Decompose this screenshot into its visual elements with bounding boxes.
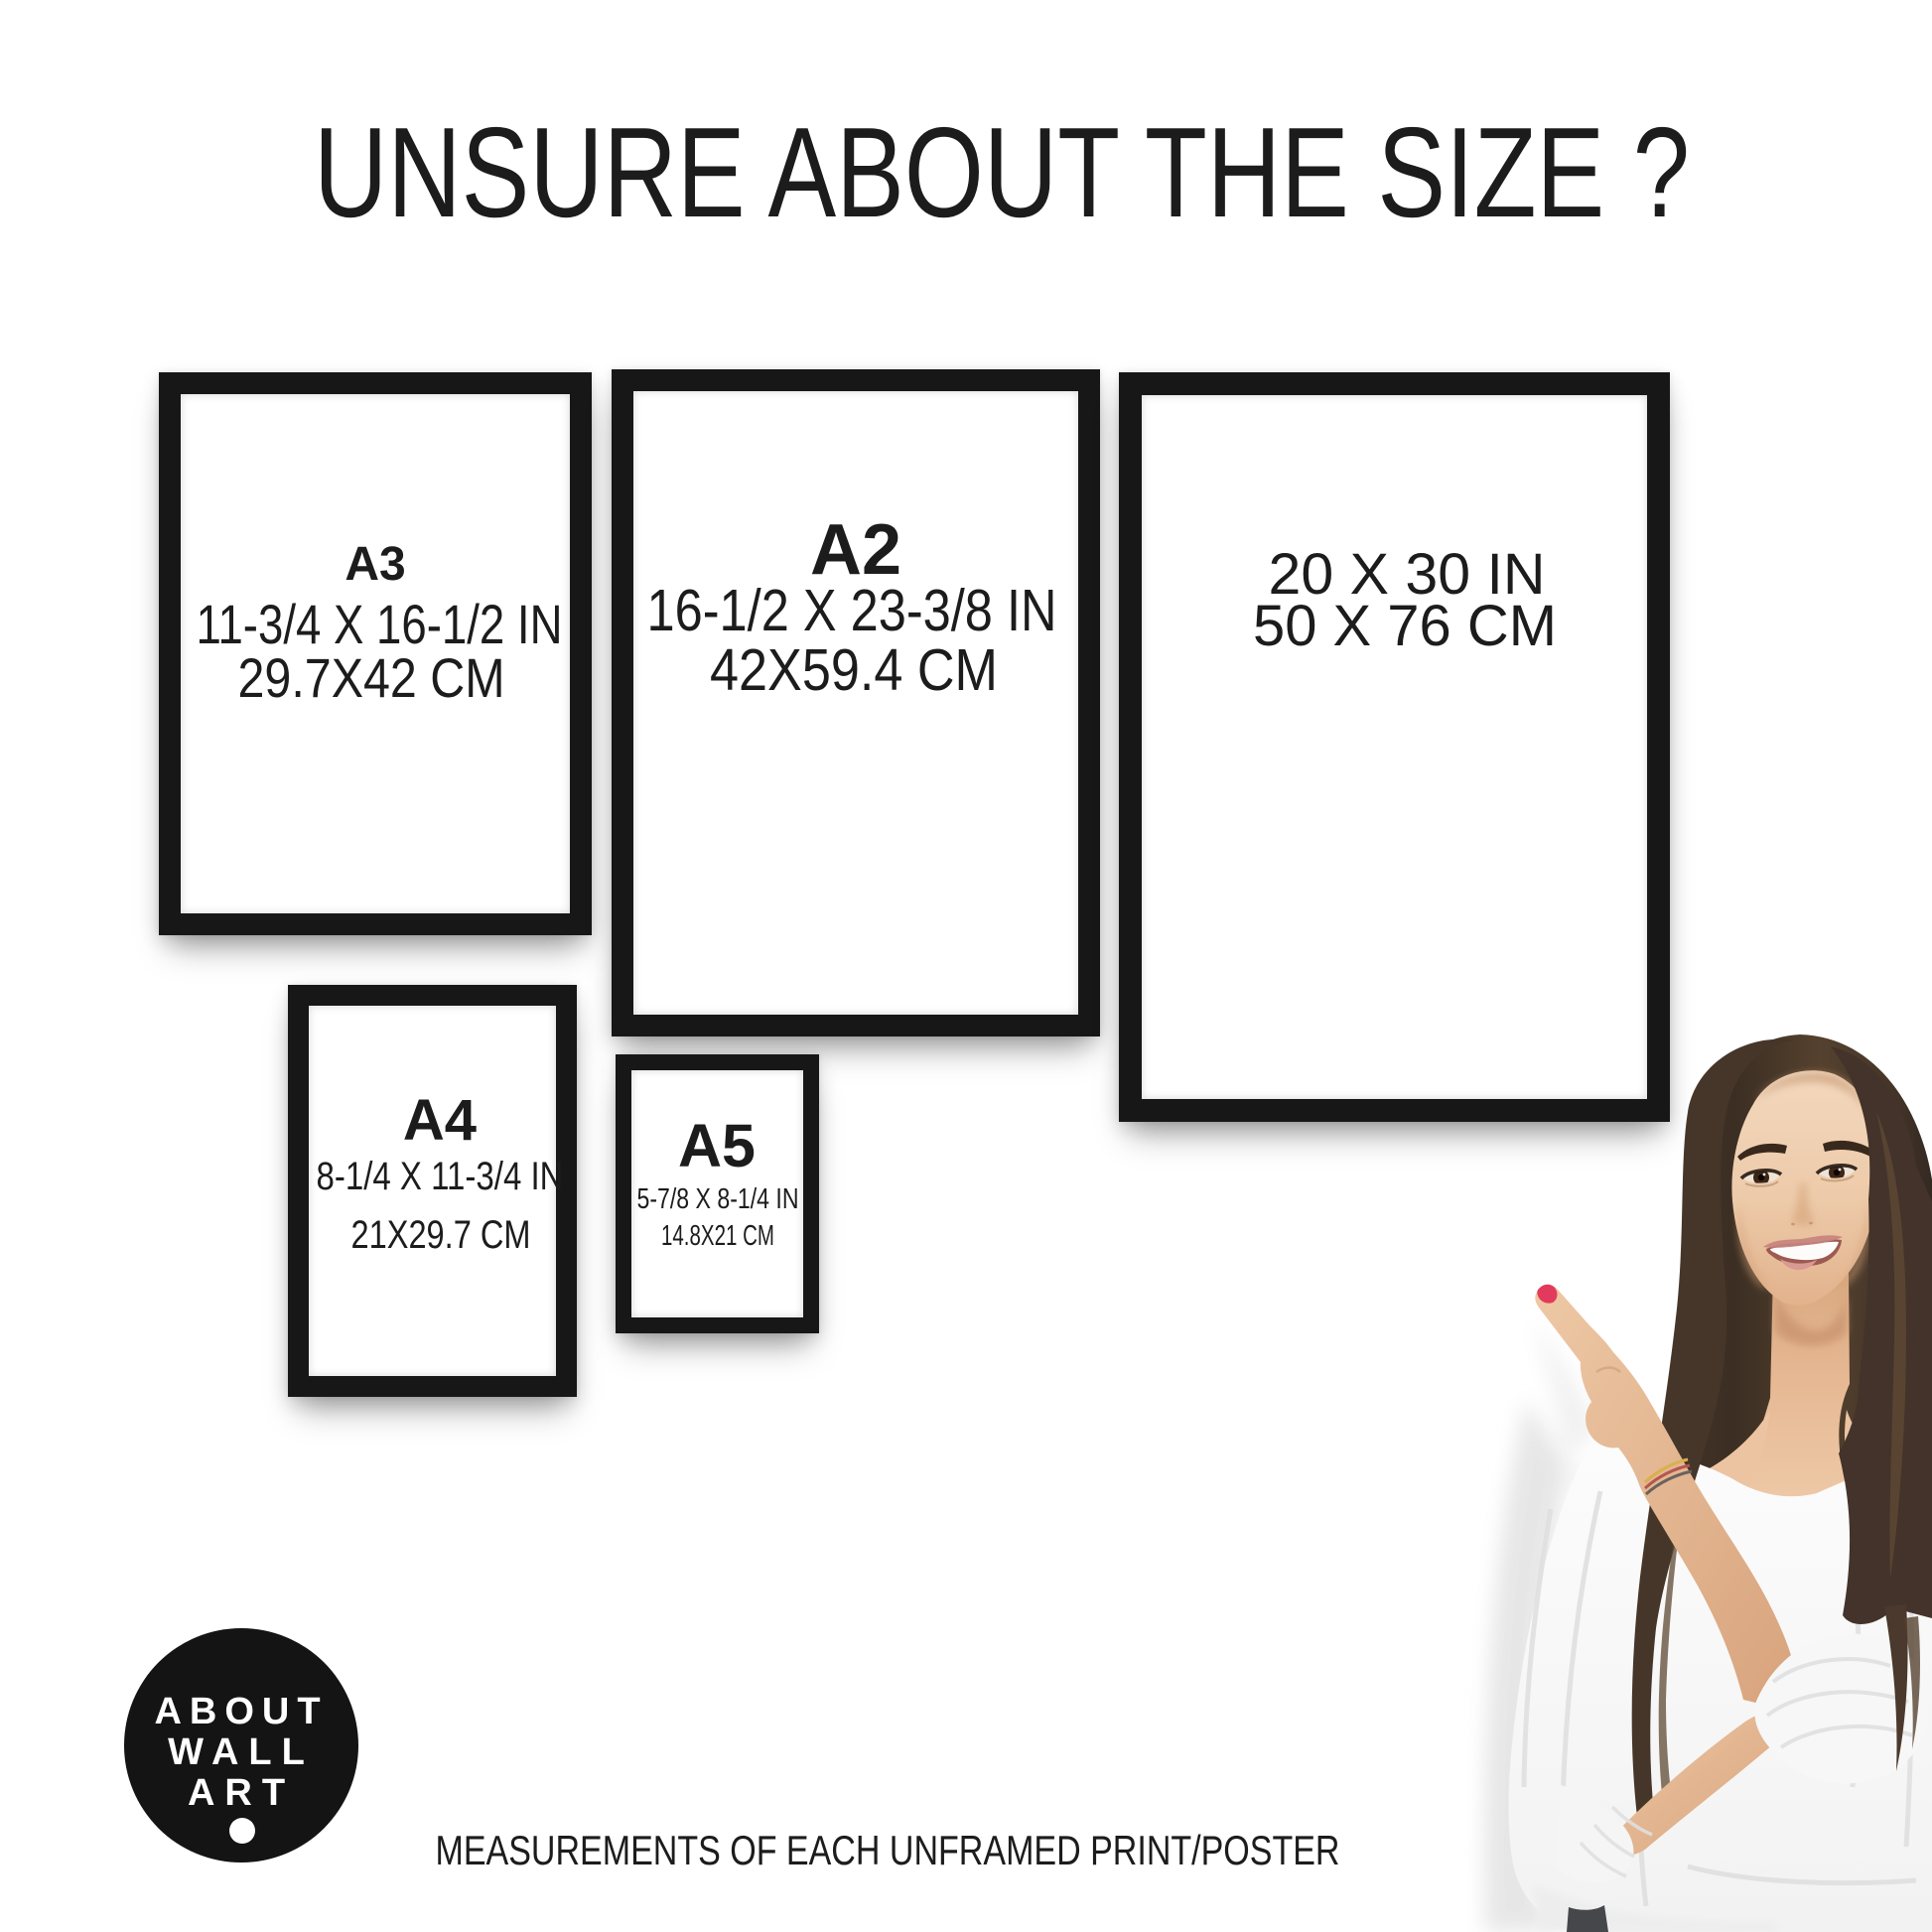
svg-text:A5: A5	[678, 1112, 756, 1179]
svg-text:21X29.7 CM: 21X29.7 CM	[351, 1213, 531, 1257]
svg-text:ART: ART	[188, 1772, 295, 1814]
svg-text:5-7/8 X 8-1/4 IN: 5-7/8 X 8-1/4 IN	[637, 1183, 799, 1215]
svg-text:WALL: WALL	[168, 1731, 315, 1773]
svg-text:16-1/2 X 23-3/8 IN: 16-1/2 X 23-3/8 IN	[647, 578, 1057, 643]
svg-text:29.7X42 CM: 29.7X42 CM	[238, 646, 505, 709]
svg-text:A4: A4	[403, 1088, 477, 1153]
svg-text:UNSURE ABOUT THE SIZE ?: UNSURE ABOUT THE SIZE ?	[314, 101, 1690, 244]
svg-text:42X59.4 CM: 42X59.4 CM	[710, 637, 998, 703]
svg-text:MEASUREMENTS OF EACH UNFRAMED: MEASUREMENTS OF EACH UNFRAMED PRINT/POST…	[436, 1827, 1340, 1873]
svg-text:ABOUT: ABOUT	[154, 1691, 328, 1732]
svg-text:A3: A3	[345, 538, 405, 591]
svg-text:50 X 76 CM: 50 X 76 CM	[1253, 594, 1557, 658]
svg-text:14.8X21 CM: 14.8X21 CM	[661, 1220, 774, 1252]
svg-text:8-1/4 X 11-3/4 IN: 8-1/4 X 11-3/4 IN	[317, 1155, 564, 1198]
